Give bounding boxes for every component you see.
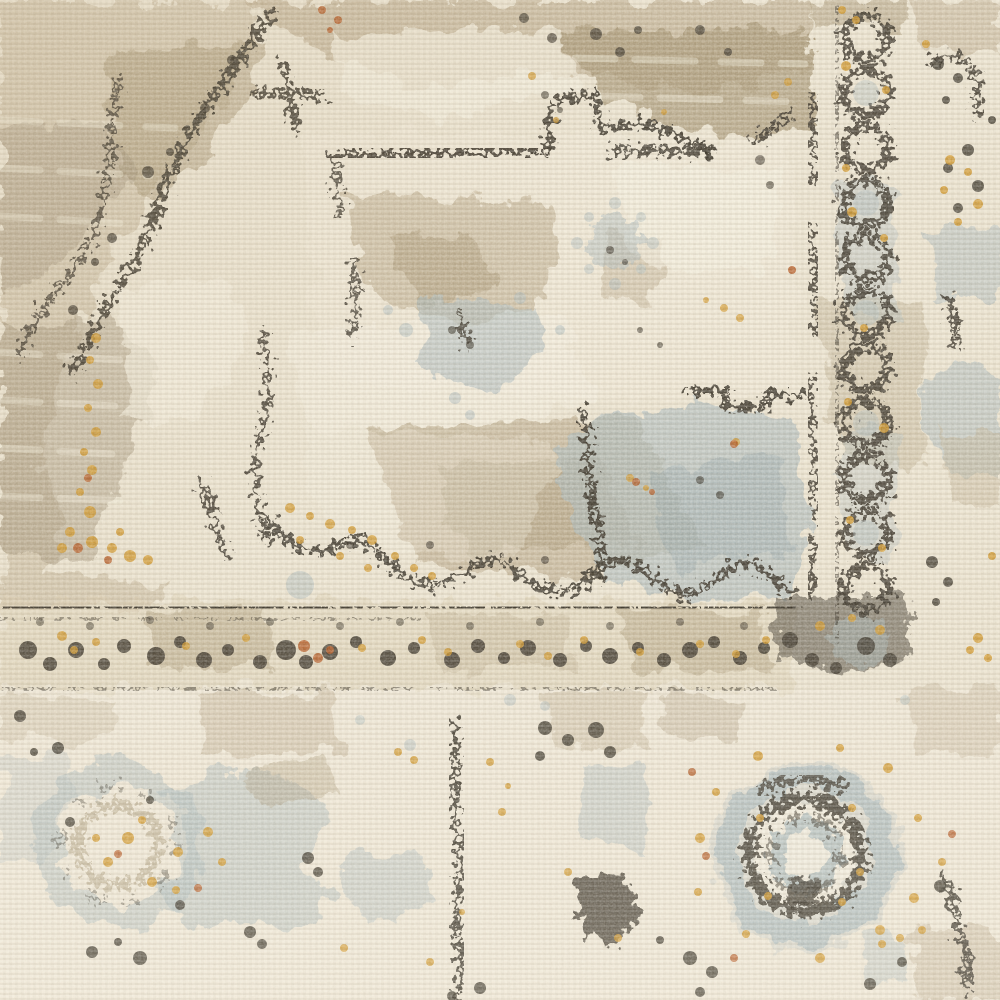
grain-overlay-dark (0, 0, 1000, 1000)
rug-canvas (0, 0, 1000, 1000)
rug-photo: Close-up of a distressed vintage-style a… (0, 0, 1000, 1000)
